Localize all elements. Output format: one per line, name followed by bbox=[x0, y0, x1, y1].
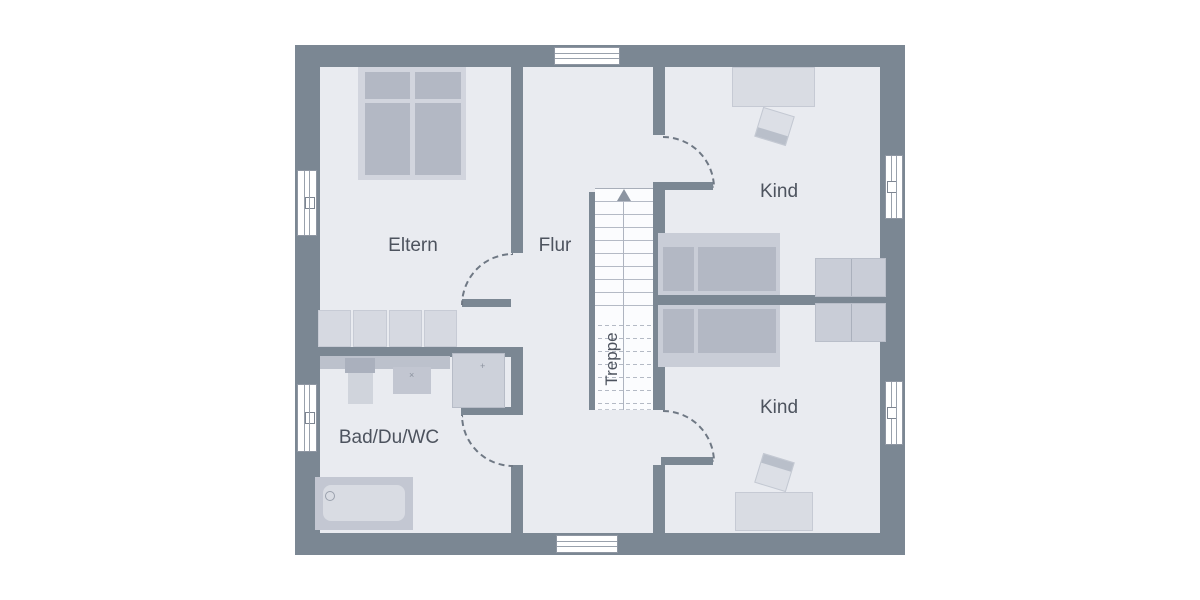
bed-mattress bbox=[698, 247, 776, 291]
bed-kind-top bbox=[658, 233, 780, 295]
wardrobe-unit bbox=[318, 310, 351, 347]
door-leaf-bad bbox=[461, 407, 511, 415]
window-bottom bbox=[556, 535, 618, 553]
bed-mattress bbox=[415, 103, 461, 175]
washbasin: × bbox=[393, 367, 431, 394]
toilet-bowl bbox=[348, 373, 373, 404]
wardrobe-unit bbox=[389, 310, 422, 347]
room-label-kind-bottom: Kind bbox=[760, 397, 798, 419]
wardrobe-unit bbox=[353, 310, 386, 347]
window-top bbox=[554, 47, 620, 65]
bathtub bbox=[315, 477, 413, 530]
bed-kind-bottom bbox=[658, 305, 780, 367]
wall-flur-kind-bottom bbox=[653, 465, 665, 533]
window-handle-icon bbox=[305, 197, 315, 209]
room-label-kind-top: Kind bbox=[760, 181, 798, 203]
bed-eltern bbox=[358, 67, 466, 180]
window-handle-icon bbox=[887, 181, 897, 193]
window-handle-icon bbox=[305, 412, 315, 424]
bathtub-drain-icon bbox=[325, 491, 335, 501]
stair-label: Treppe bbox=[602, 332, 622, 385]
stair-centerline bbox=[623, 200, 624, 410]
room-label-bad: Bad/Du/WC bbox=[339, 427, 439, 449]
window-left-eltern bbox=[297, 170, 317, 236]
room-label-flur: Flur bbox=[539, 235, 572, 257]
desk-kind-top bbox=[732, 67, 815, 107]
wall-bad-flur-upper bbox=[511, 347, 523, 415]
wardrobe-eltern bbox=[318, 310, 457, 347]
bed-pillow bbox=[663, 247, 694, 291]
bed-pillow bbox=[365, 72, 410, 99]
window-left-bad bbox=[297, 384, 317, 452]
dresser-kind-top bbox=[815, 258, 886, 297]
wall-eltern-flur bbox=[511, 67, 523, 253]
wardrobe-unit bbox=[424, 310, 457, 347]
window-handle-icon bbox=[887, 407, 897, 419]
floor-plan-canvas: Treppe × + E bbox=[0, 0, 1200, 600]
shower-faucet-icon: + bbox=[480, 362, 485, 371]
bathtub-basin bbox=[323, 485, 405, 521]
window-right-kind-bottom bbox=[885, 381, 903, 445]
shower: + bbox=[452, 353, 505, 408]
toilet-cistern bbox=[345, 358, 375, 373]
wall-bad-flur-lower bbox=[511, 465, 523, 533]
basin-faucet-icon: × bbox=[409, 371, 414, 380]
dresser-kind-bottom bbox=[815, 303, 886, 342]
room-label-eltern: Eltern bbox=[388, 235, 438, 257]
bed-pillow bbox=[663, 309, 694, 353]
desk-kind-bottom bbox=[735, 492, 813, 531]
stair-up-arrow-icon bbox=[617, 189, 631, 201]
wall-flur-kind-top bbox=[653, 67, 665, 135]
bed-pillow bbox=[415, 72, 461, 99]
staircase: Treppe bbox=[595, 188, 653, 410]
bed-mattress bbox=[698, 309, 776, 353]
stair-treads-solid bbox=[595, 189, 653, 313]
window-right-kind-top bbox=[885, 155, 903, 219]
bed-mattress bbox=[365, 103, 410, 175]
